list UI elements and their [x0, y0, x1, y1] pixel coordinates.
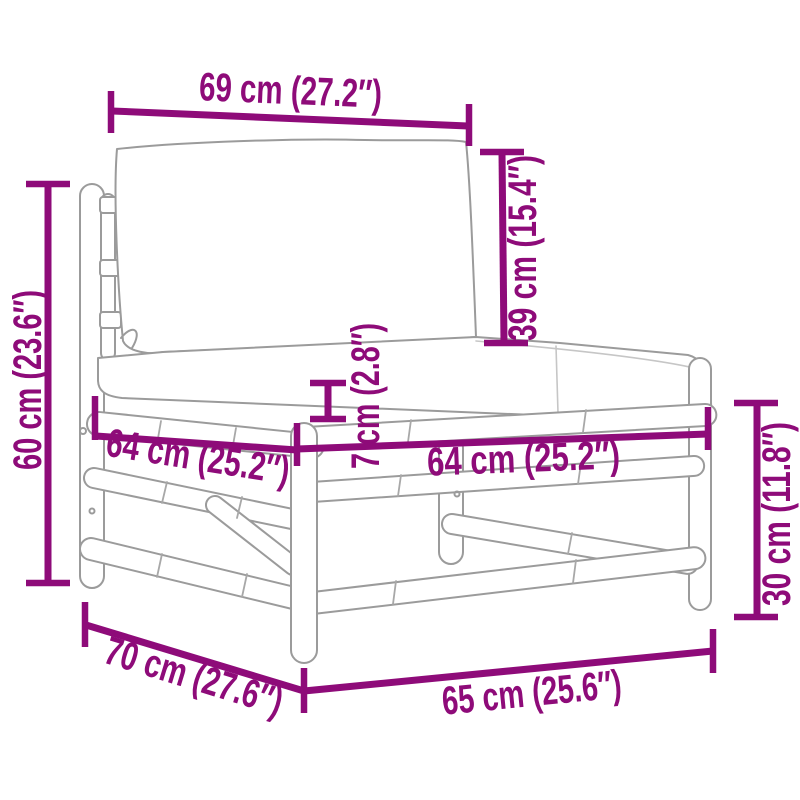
furniture-illustration: [78, 139, 717, 663]
dimension-label: 39 cm (15.4″): [501, 155, 545, 341]
dimension-diagram: 69 cm (27.2″) 39 cm (15.4″) 60 cm (23.6″…: [0, 0, 800, 800]
dimension-label: 30 cm (11.8″): [755, 422, 799, 606]
dimension-label: 60 cm (23.6″): [6, 290, 50, 470]
dimension-label: 70 cm (27.6″): [99, 629, 288, 725]
dimension-label: 69 cm (27.2″): [198, 65, 383, 117]
frame-connector: [100, 312, 121, 328]
back-cushion: [116, 139, 476, 353]
dimension-back-cushion-width: 69 cm (27.2″): [111, 65, 469, 146]
dimension-label: 64 cm (25.2″): [426, 433, 621, 484]
dimension-frame-height: 30 cm (11.8″): [734, 403, 799, 617]
dimension-overall-depth: 70 cm (27.6″): [85, 602, 304, 725]
dimension-overall-width: 65 cm (25.6″): [304, 629, 713, 724]
dimension-overall-height: 60 cm (23.6″): [6, 184, 70, 583]
dimension-back-cushion-height: 39 cm (15.4″): [480, 152, 545, 343]
bamboo-pole: [301, 546, 707, 615]
dimension-line: [112, 111, 468, 126]
back-cushion-outline: [116, 139, 476, 353]
